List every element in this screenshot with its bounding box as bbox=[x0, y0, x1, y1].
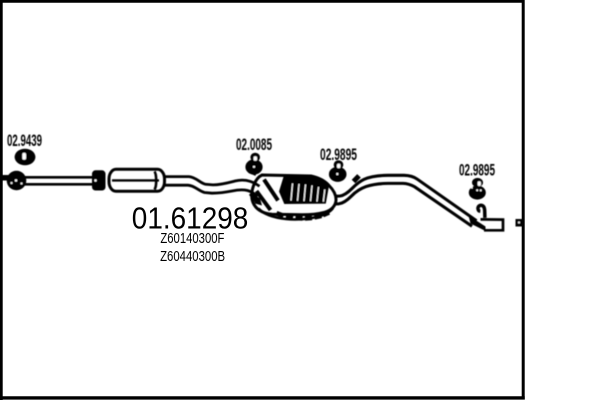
svg-text:Z60440300B: Z60440300B bbox=[160, 248, 225, 265]
svg-text:02.9439: 02.9439 bbox=[7, 132, 42, 150]
svg-text:Z60140300F: Z60140300F bbox=[160, 230, 224, 247]
svg-text:02.0085: 02.0085 bbox=[236, 136, 272, 154]
svg-text:02.9895: 02.9895 bbox=[459, 162, 495, 180]
